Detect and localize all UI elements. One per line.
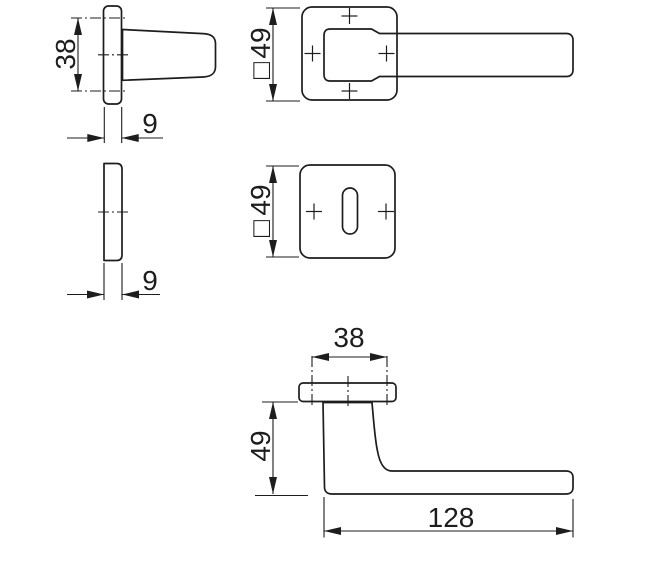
technical-drawing-page: 38 9 xyxy=(0,0,667,561)
dimension-handle-length-128: 128 xyxy=(324,497,573,538)
dim-label-hole-spacing: 38 xyxy=(50,38,81,69)
dimension-hub-width-38: 38 xyxy=(312,322,387,361)
screw-hole-cross-icon xyxy=(306,204,322,220)
arrowhead-up-icon xyxy=(269,402,277,419)
handle-top-view: 38 49 128 xyxy=(245,322,573,538)
square-symbol-icon: □ xyxy=(245,220,276,237)
arrowhead-down-icon xyxy=(269,240,277,257)
dim-label-rosette-thickness: 9 xyxy=(142,108,158,139)
lever-grip-outline xyxy=(123,30,216,81)
arrowhead-left-icon xyxy=(122,134,139,142)
dimension-rosette-size-49: 49 □ xyxy=(245,8,300,101)
dim-label-rosette-thickness: 9 xyxy=(142,265,158,296)
lever-front-view: 49 □ xyxy=(245,7,573,101)
lever-handle-outline xyxy=(324,29,573,81)
arrowhead-right-icon xyxy=(87,291,104,299)
arrowhead-left-icon xyxy=(324,527,341,535)
keyhole-slot-outline xyxy=(343,188,358,234)
dim-label-rosette-size: 49 xyxy=(245,27,276,58)
dimension-rosette-thickness-9: 9 xyxy=(67,263,160,300)
screw-hole-cross-icon xyxy=(342,8,358,24)
dim-label-rosette-size: 49 xyxy=(245,184,276,215)
dim-label-handle-length: 128 xyxy=(428,502,475,533)
arrowhead-down-icon xyxy=(74,74,82,91)
key-rosette-front-view: 49 □ xyxy=(245,165,395,258)
screw-hole-cross-icon xyxy=(305,46,321,62)
screw-hole-cross-icon xyxy=(378,204,394,220)
arrowhead-down-icon xyxy=(269,84,277,101)
dimension-rosette-size-49: 49 □ xyxy=(245,166,299,257)
dim-label-handle-projection: 49 xyxy=(245,430,276,461)
arrowhead-down-icon xyxy=(269,477,277,494)
door-handle-dimension-drawing: 38 9 xyxy=(0,0,667,561)
arrowhead-right-icon xyxy=(87,134,104,142)
square-symbol-icon: □ xyxy=(245,62,276,79)
arrowhead-right-icon xyxy=(370,353,387,361)
arrowhead-right-icon xyxy=(556,527,573,535)
dim-label-hub-width: 38 xyxy=(333,322,364,353)
dimension-hole-spacing-38: 38 xyxy=(50,18,82,91)
screw-hole-cross-icon xyxy=(342,83,358,99)
arrowhead-up-icon xyxy=(269,8,277,25)
arrowhead-left-icon xyxy=(312,353,329,361)
arrowhead-left-icon xyxy=(122,291,139,299)
arrowhead-up-icon xyxy=(74,18,82,35)
dimension-handle-projection-49: 49 xyxy=(245,402,308,496)
arrowhead-up-icon xyxy=(269,166,277,183)
lever-handle-profile-outline xyxy=(323,403,573,495)
screw-hole-cross-icon xyxy=(379,46,395,62)
lever-side-view: 38 9 xyxy=(50,6,216,143)
key-rosette-side-view: 9 xyxy=(67,164,160,301)
dimension-rosette-thickness-9: 9 xyxy=(67,107,163,143)
